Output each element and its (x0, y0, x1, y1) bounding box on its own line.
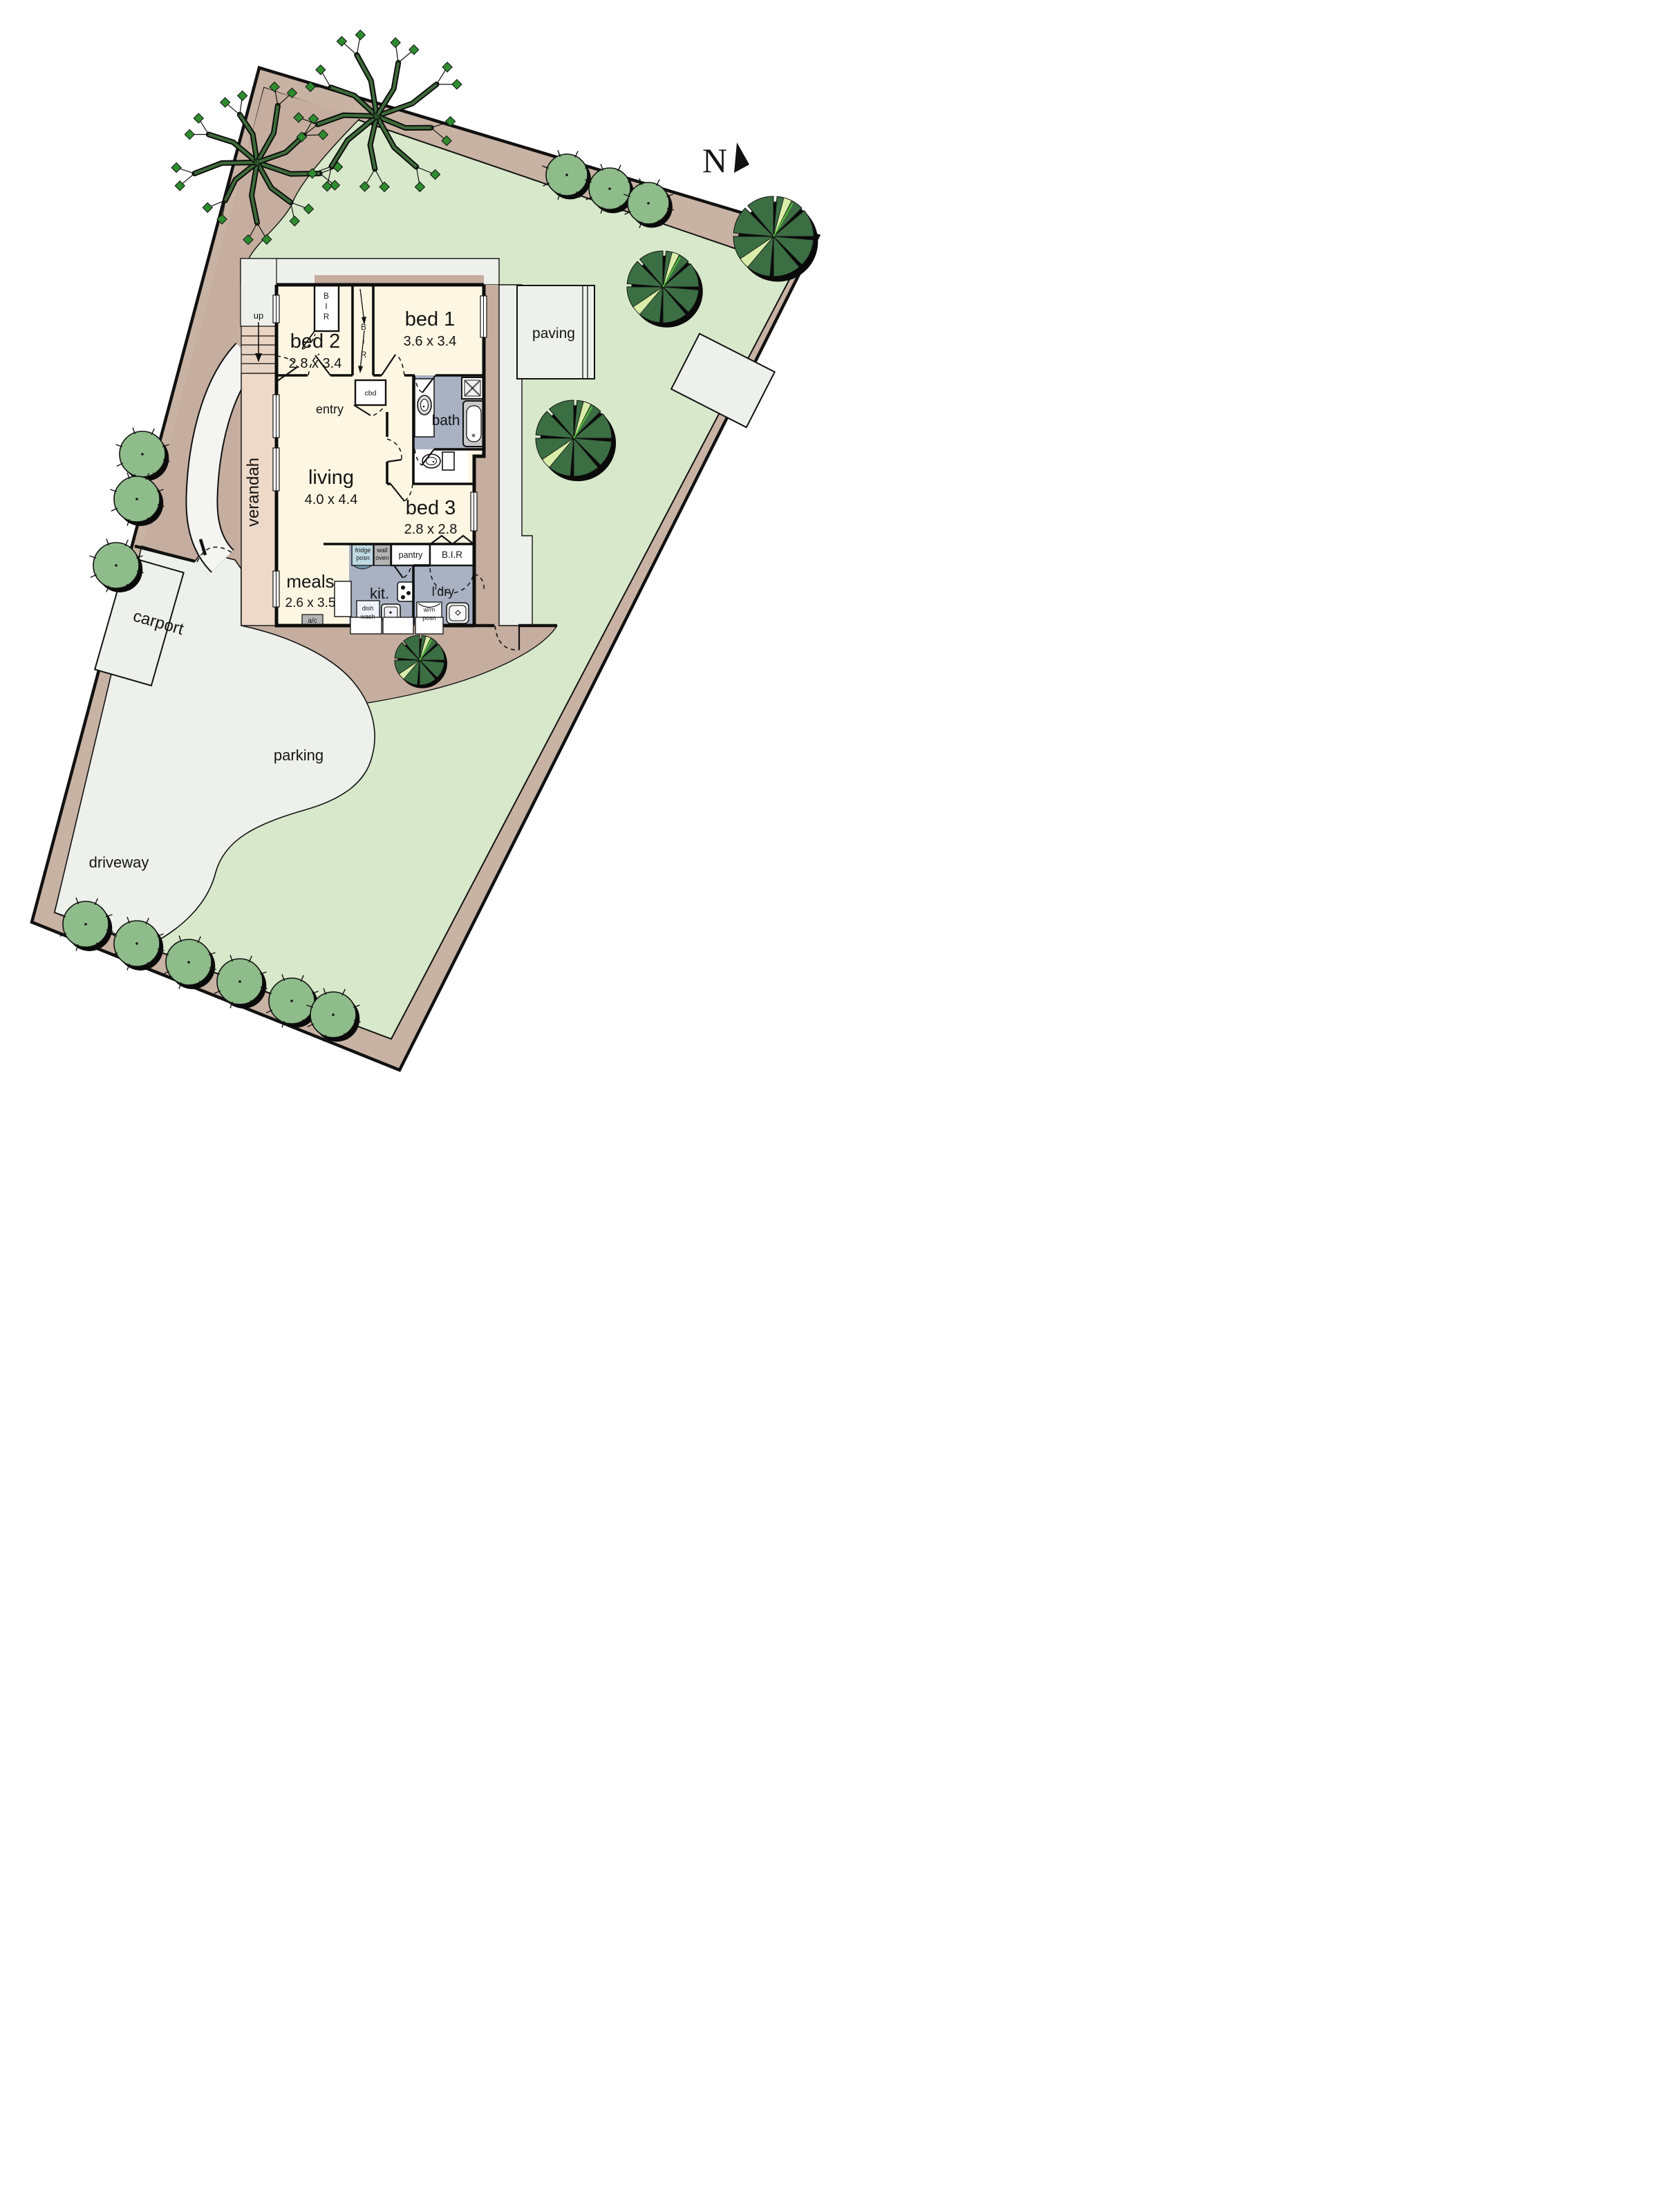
wc-floor (413, 449, 469, 484)
room-label-meals: meals (286, 571, 334, 592)
room-label-kitchen: kit. (370, 585, 389, 602)
trough-bowl (449, 606, 466, 621)
label-up: up (254, 310, 263, 321)
burner (406, 591, 411, 595)
label-cbd: cbd (365, 389, 377, 397)
burner (401, 595, 405, 599)
svg-text:oven: oven (375, 554, 389, 561)
room-label-bed2: bed 2 (290, 330, 341, 353)
north-arrow-icon (734, 142, 749, 173)
svg-text:posn: posn (356, 554, 370, 561)
room-dims-bed2: 2.8 x 3.4 (289, 356, 342, 371)
north-label: N (702, 141, 727, 180)
cooktop (397, 582, 414, 601)
room-label-bed1: bed 1 (405, 308, 456, 330)
site-plan-drawing: bed 2 2.8 x 3.4 bed 1 3.6 x 3.4 bed 3 2.… (0, 0, 829, 1106)
label-bir: B.I.R (442, 550, 462, 560)
label-paving: paving (532, 326, 575, 341)
svg-text:posn: posn (422, 615, 436, 621)
label-parking: parking (274, 747, 324, 764)
basin-drain (423, 406, 425, 408)
svg-text:I: I (325, 303, 327, 311)
room-label-bed3: bed 3 (406, 497, 456, 519)
toilet-cistern (442, 452, 454, 470)
room-dims-bed3: 2.8 x 2.8 (404, 522, 458, 537)
room-label-living: living (308, 467, 354, 489)
label-pantry: pantry (399, 550, 423, 560)
site-plan-page: bed 2 2.8 x 3.4 bed 1 3.6 x 3.4 bed 3 2.… (0, 0, 829, 1106)
room-label-bath: bath (432, 413, 460, 429)
svg-text:a/c: a/c (308, 617, 317, 625)
svg-text:w/m: w/m (423, 606, 435, 613)
room-label-laundry: l'dry (432, 585, 454, 599)
label-driveway: driveway (89, 854, 149, 871)
basin-bowl (421, 400, 429, 411)
burner (401, 585, 405, 590)
svg-text:R: R (361, 351, 366, 359)
room-dims-living: 4.0 x 4.4 (305, 492, 358, 507)
shower-drain (471, 387, 474, 390)
svg-text:dish: dish (362, 605, 374, 612)
toilet-drain (433, 461, 434, 462)
kitchen-bench (335, 581, 351, 617)
svg-text:wash: wash (359, 613, 375, 620)
svg-text:fridge: fridge (355, 547, 371, 554)
room-dims-bed1: 3.6 x 3.4 (404, 334, 457, 349)
svg-text:I: I (362, 337, 364, 346)
label-verandah: verandah (244, 458, 263, 527)
room-dims-meals: 2.6 x 3.5 (285, 596, 336, 610)
svg-text:B: B (361, 324, 366, 332)
tub-drain (472, 434, 476, 438)
svg-text:R: R (324, 313, 329, 321)
svg-text:B: B (324, 292, 329, 301)
room-label-entry: entry (316, 402, 344, 416)
svg-text:wall: wall (376, 547, 388, 554)
sink-drain (389, 611, 391, 613)
